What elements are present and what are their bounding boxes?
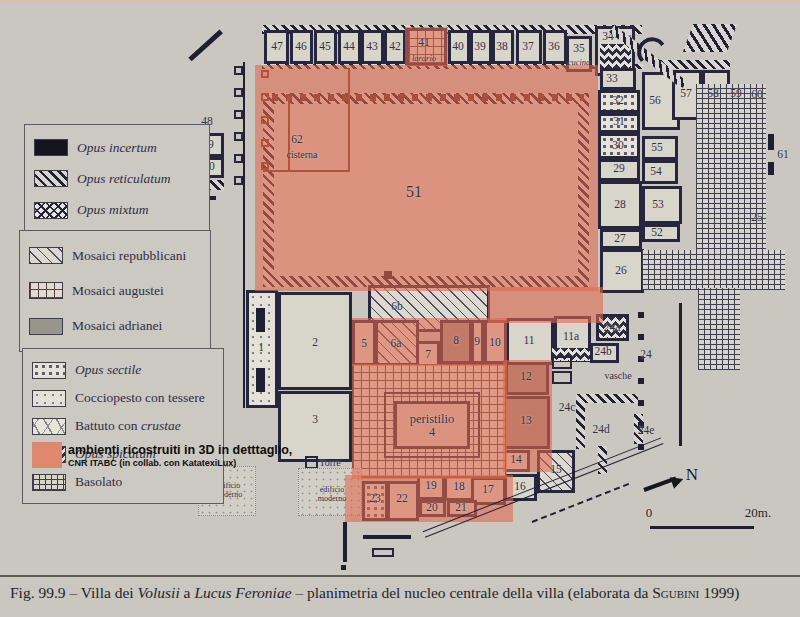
plan-box-ink [638, 400, 644, 406]
legend-item: Opus sectile [32, 362, 214, 379]
room-label-12: 12 [520, 371, 532, 383]
rep-pattern-swatch [29, 247, 63, 264]
legend-item: Cocciopesto con tessere [32, 390, 214, 407]
plan-box-hatch [576, 403, 585, 449]
plan-box-brown [288, 96, 290, 172]
plan-box-none [552, 371, 572, 384]
plan-box-ink [650, 526, 754, 529]
room-label-35: 35 [573, 43, 585, 55]
room-label-53: 53 [652, 199, 664, 211]
legend-item: Opus reticulatum [34, 170, 200, 187]
room-label-19: 19 [425, 480, 437, 492]
legend-masonry: Opus incertumOpus reticulatumOpus mixtum [24, 124, 210, 234]
plan-box-br [261, 162, 269, 170]
room-label-vasche: vasche [604, 371, 631, 381]
room-label-31: 31 [613, 116, 625, 128]
room-label-0: 0 [646, 506, 653, 519]
legend-3d-line2: CNR ITABC (in collab. con KatatexiLux) [68, 458, 236, 468]
room-label-36: 36 [548, 41, 560, 53]
room-label-18: 18 [453, 481, 465, 493]
room-label-30: 30 [612, 140, 624, 152]
adr-pattern-swatch [29, 318, 63, 335]
legend-item: Opus incertum [34, 139, 200, 156]
plan-box-ink [384, 271, 392, 279]
room-label-39: 39 [474, 41, 486, 53]
legend-item-label: Cocciopesto con tessere [75, 390, 205, 406]
plan-box-ink [638, 334, 644, 340]
room-label-42: 42 [389, 41, 401, 53]
red-swatch [32, 442, 62, 468]
north-arrow-head [670, 473, 685, 488]
room-label-23: 23 [369, 493, 381, 505]
figure-page: 4746454443424140393837363534larariocucin… [0, 0, 800, 617]
plan-box-none [234, 132, 243, 141]
room-label-17: 17 [482, 484, 494, 496]
plan-box-none [234, 154, 243, 163]
room-label-9: 9 [474, 336, 480, 348]
plan-box-none [552, 356, 572, 369]
plan-box-none [234, 110, 243, 119]
room-label-cucina: cucina [568, 58, 591, 67]
plan-box-none [234, 88, 243, 97]
plan-box-pink [0, 0, 800, 3]
room-label-11: 11 [523, 335, 534, 347]
room-label-moderno: moderno [318, 495, 346, 503]
plan-box-ink [768, 162, 774, 175]
plan-box-none [372, 548, 394, 557]
plan-box-br [261, 70, 269, 78]
room-label-59: 59 [730, 88, 742, 100]
legend-item-label: Mosaici adrianei [72, 318, 162, 334]
room-label-20m-: 20m. [745, 506, 771, 519]
room-label-cisterna: cisterna [286, 150, 317, 160]
room-label-44: 44 [343, 41, 355, 53]
room-label-55: 55 [651, 142, 663, 154]
legend-item-label: Mosaici augustei [72, 283, 164, 299]
mixtum-pattern-swatch [34, 202, 68, 219]
room-label-8: 8 [453, 335, 459, 347]
legend-item: Mosaici augustei [29, 282, 201, 299]
legend-mosaics: Mosaici repubblicaniMosaici augusteiMosa… [19, 230, 211, 352]
room-label-24a: 24a [604, 322, 621, 334]
battuto-pattern-swatch [32, 418, 66, 435]
plan-box-brown [348, 68, 350, 172]
legend-item-label: Basolato [75, 474, 122, 490]
plan-box-hatch [576, 394, 638, 403]
room-label-40: 40 [452, 41, 464, 53]
legend-item-label: Opus reticulatum [77, 171, 171, 187]
room-label-47: 47 [271, 41, 283, 53]
room-label-24e: 24e [638, 425, 655, 437]
room-label-27: 27 [614, 233, 626, 245]
wall-fragment-diagonal [188, 30, 223, 62]
room-label-57: 57 [680, 88, 692, 100]
room-label-14: 14 [510, 454, 522, 466]
room-label-torre: Torre [319, 458, 341, 468]
legend-item: Mosaici repubblicani [29, 247, 201, 264]
room-label-24: 24 [640, 349, 652, 361]
room-label-41: 41 [418, 37, 430, 49]
plan-box-edge [0, 575, 800, 577]
plan-box-ink [638, 312, 644, 318]
room-label-29: 29 [613, 163, 625, 175]
room-label-6b: 6b [391, 301, 403, 313]
legend-item-label: Opus mixtum [77, 202, 149, 218]
coccio-pattern-swatch [32, 390, 66, 407]
legend-item-label: Battuto con crustae [75, 418, 181, 434]
plan-box-dash [272, 94, 584, 101]
room-label-58: 58 [707, 88, 719, 100]
room-label-11a: 11a [563, 331, 579, 343]
room-label-46: 46 [295, 41, 307, 53]
room-label-28: 28 [614, 199, 626, 211]
room-label-larario: larario [412, 54, 436, 63]
room-label-32: 32 [612, 95, 624, 107]
room-label-51: 51 [406, 184, 422, 200]
plan-box-ink [363, 535, 411, 539]
plan-box-none [234, 66, 243, 75]
room-label-n: N [686, 466, 698, 483]
hatch-pattern-swatch [34, 170, 68, 187]
figure-caption: Fig. 99.9 – Villa dei Volusii a Lucus Fe… [10, 584, 796, 602]
plan-box-ink [243, 62, 245, 408]
room-label-43: 43 [366, 41, 378, 53]
plan-box-basolato [642, 250, 785, 290]
room-label-15: 15 [550, 464, 562, 476]
plan-box-basolato [698, 288, 740, 370]
room-label-24b: 24b [594, 346, 611, 358]
room-label-52: 52 [651, 227, 663, 239]
plan-box-ink [679, 303, 682, 446]
plan-box-ink [341, 565, 346, 570]
room-label-45: 45 [319, 41, 331, 53]
room-label-4: 4 [429, 426, 435, 439]
room-label-54: 54 [650, 166, 662, 178]
legend-floors: Opus sectileCocciopesto con tessereBattu… [22, 348, 224, 504]
room-label-edificio: edificio [320, 486, 344, 494]
room-label-25: 25 [751, 212, 763, 224]
room-label-24d: 24d [592, 424, 609, 436]
room-label-3: 3 [312, 414, 318, 426]
room-label-7: 7 [425, 349, 431, 361]
room-label-61: 61 [777, 149, 789, 161]
plan-box-ink [256, 308, 265, 332]
plan-box-ink [768, 134, 774, 150]
room-label-22: 22 [396, 493, 408, 505]
wall-hatched-parallelogram [683, 24, 737, 52]
incertum-pattern-swatch [34, 139, 68, 156]
room-label-2: 2 [312, 337, 318, 349]
room-label-13: 13 [520, 415, 532, 427]
legend-item: Mosaici adrianei [29, 318, 201, 335]
room-label-37: 37 [522, 41, 534, 53]
plan-box-basolato [696, 84, 766, 254]
plan-box-br [261, 116, 269, 124]
plan-box-paper [274, 104, 578, 276]
legend-item: Basolato [32, 474, 214, 491]
legend-item-label: Opus sectile [75, 362, 141, 378]
room-label-5: 5 [361, 338, 367, 350]
plan-box-ink [638, 378, 644, 384]
sectile-pattern-swatch [32, 362, 66, 379]
room-label-60: 60 [751, 89, 763, 101]
legend-item: Battuto con crustae [32, 418, 214, 435]
room-label-21: 21 [455, 502, 467, 514]
legend-item-label: Mosaici repubblicani [72, 248, 186, 264]
legend-item-label: Opus incertum [77, 140, 157, 156]
plan-box-ink [343, 522, 347, 562]
room-label-62: 62 [291, 134, 303, 146]
aug-pattern-swatch [29, 282, 63, 299]
plan-box-br [261, 93, 269, 101]
room-label-26: 26 [615, 265, 627, 277]
room-label-33: 33 [606, 73, 618, 85]
room-label-peristilio: peristilio [410, 413, 454, 426]
room-label-6a: 6a [391, 338, 402, 350]
room-label-20: 20 [426, 502, 438, 514]
plan-box-br [261, 139, 269, 147]
legend-3d-line1: ambienti ricostruiti in 3D in detttaglio… [68, 443, 292, 457]
plan-box-brown [263, 170, 350, 172]
basolato-pattern-swatch [32, 474, 66, 491]
room-label-24c: 24c [559, 402, 576, 414]
room-label-10: 10 [489, 337, 501, 349]
room-label-56: 56 [649, 95, 661, 107]
room-label-38: 38 [496, 41, 508, 53]
room-label-1: 1 [258, 342, 264, 354]
legend-item: Opus mixtum [34, 202, 200, 219]
plan-box-ink [256, 368, 265, 392]
plan-box-none [234, 176, 243, 185]
